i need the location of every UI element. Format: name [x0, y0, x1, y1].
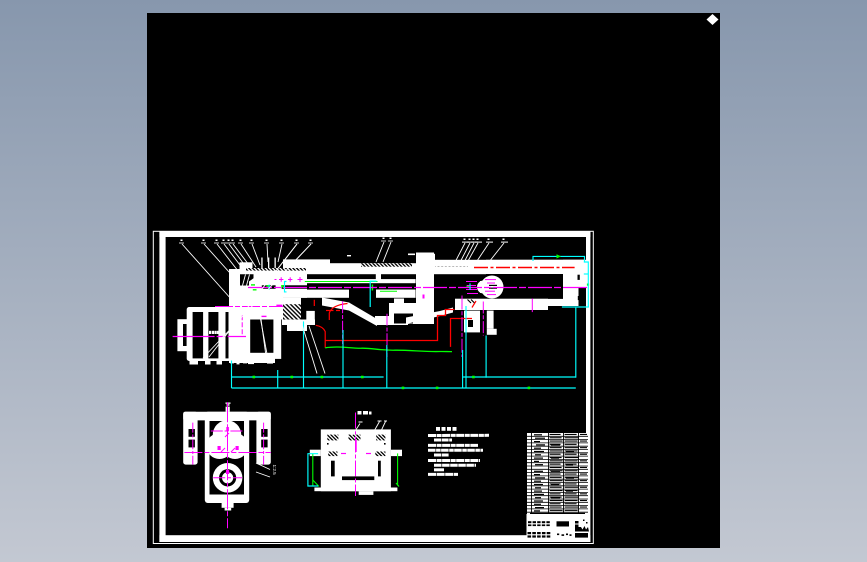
svg-text:1:2.5: 1:2.5	[272, 465, 277, 476]
